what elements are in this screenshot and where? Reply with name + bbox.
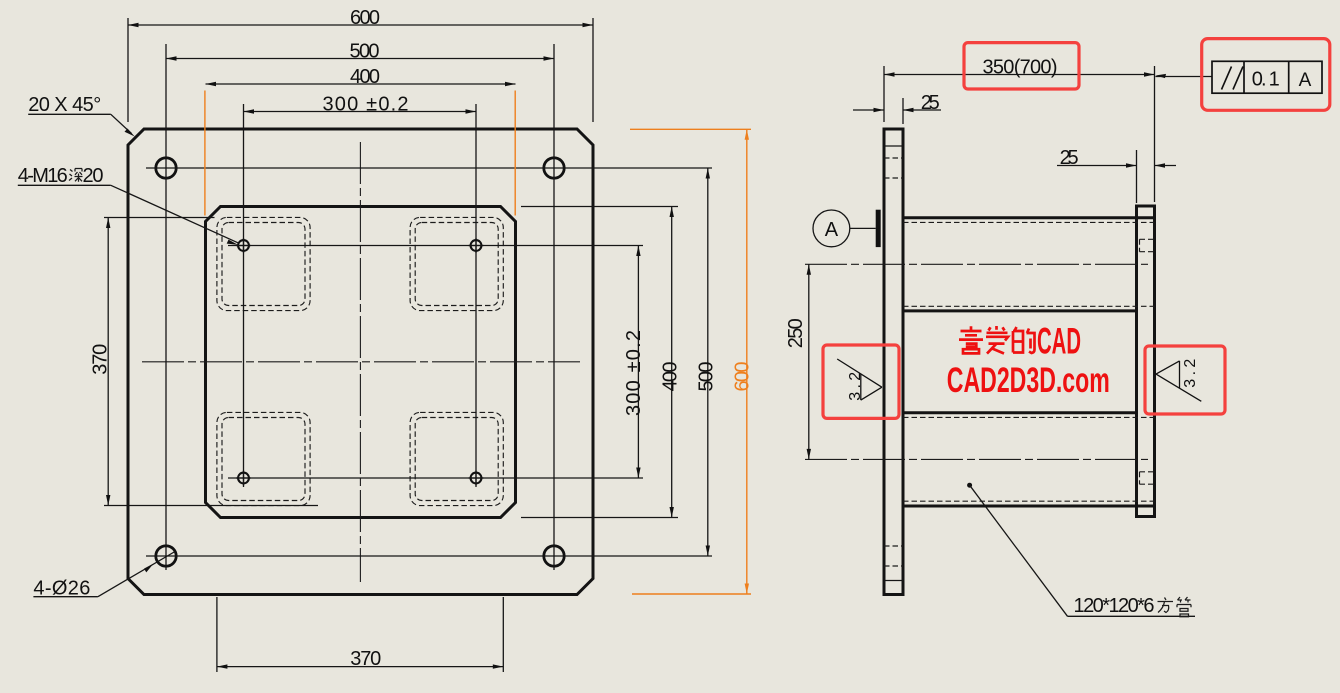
svg-text:25: 25	[921, 92, 940, 114]
svg-text:300 ±0.2: 300 ±0.2	[323, 94, 409, 116]
svg-text:500: 500	[696, 362, 718, 392]
svg-text:500: 500	[350, 41, 380, 63]
svg-text:4-M16: 4-M16	[18, 165, 68, 187]
svg-text:25: 25	[1060, 147, 1079, 169]
svg-text:350(700): 350(700)	[983, 56, 1058, 78]
svg-text:3.2: 3.2	[1182, 359, 1199, 388]
svg-text:600: 600	[732, 362, 754, 392]
svg-text:250: 250	[785, 318, 807, 348]
svg-text:20: 20	[83, 165, 104, 187]
svg-text:300 ±0.2: 300 ±0.2	[623, 330, 645, 416]
svg-text:120*120*6: 120*120*6	[1074, 595, 1155, 617]
svg-text:400: 400	[350, 66, 380, 88]
svg-text:370: 370	[89, 344, 111, 375]
svg-text:CAD: CAD	[1037, 320, 1081, 362]
svg-text:0. 1: 0. 1	[1252, 68, 1280, 90]
svg-text:CAD2D3D.com: CAD2D3D.com	[947, 361, 1110, 400]
svg-text:A: A	[1299, 70, 1312, 91]
svg-text:600: 600	[350, 7, 380, 29]
svg-text:A: A	[825, 219, 839, 241]
svg-text:400: 400	[659, 362, 681, 392]
svg-text:370: 370	[350, 648, 381, 670]
svg-text:20 X 45°: 20 X 45°	[28, 94, 101, 116]
svg-text:3.2: 3.2	[847, 372, 864, 401]
